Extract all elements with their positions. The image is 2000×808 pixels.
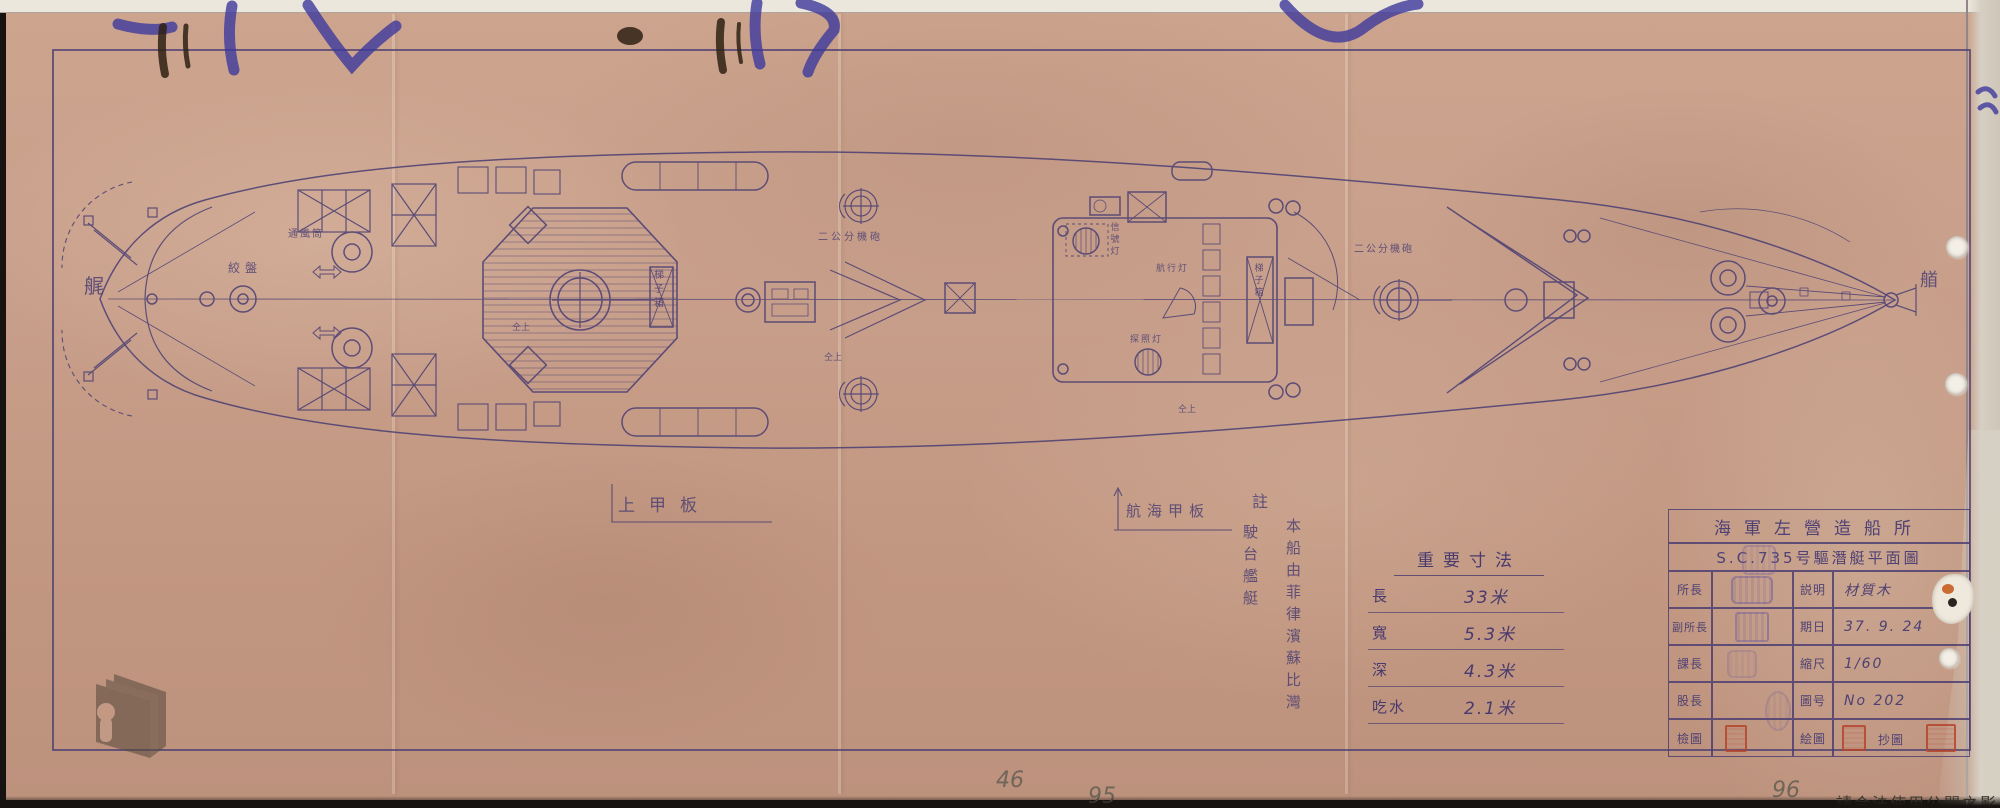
dim-value: 33米 <box>1464 583 1509 608</box>
red-seal-icon <box>1926 724 1956 752</box>
dimensions-title: 重要寸法 <box>1394 546 1544 576</box>
purple-stamp-icon <box>1735 612 1769 642</box>
approval-stamp-cell <box>1712 571 1793 608</box>
field-label: 絵圖 <box>1793 719 1833 757</box>
dim-label: 吃水 <box>1372 696 1406 717</box>
red-seal-icon <box>1842 725 1866 751</box>
ladder-box-label-2: 梯子箱 <box>1252 263 1261 299</box>
approval-stamp-cell <box>1712 682 1793 719</box>
capstan-label: 絞盤 <box>228 262 262 275</box>
role-label: 副所長 <box>1668 608 1712 645</box>
field-label: 縮尺 <box>1793 645 1833 682</box>
ditto-label: 仝上 <box>1178 406 1196 415</box>
field-value: No 202 <box>1833 682 1970 719</box>
tape-mark <box>1948 598 1957 607</box>
scan-bottom-edge <box>0 796 2000 808</box>
purple-stamp-icon <box>1742 545 1776 575</box>
purple-stamp-icon <box>1727 650 1757 678</box>
searchlight-label: 探照灯 <box>1130 336 1163 345</box>
approval-stamp-cell <box>1712 719 1793 757</box>
field-label: 圖号 <box>1793 682 1833 719</box>
pencil-number: 46 <box>996 768 1024 793</box>
field-label: 期日 <box>1793 608 1833 645</box>
role-label: 課長 <box>1668 645 1712 682</box>
principal-dimensions-table: 重要寸法 長 33米 寬 5.3米 深 4.3米 吃水 2.1米 <box>1368 546 1564 724</box>
upper-deck-label: 上甲板 <box>618 498 711 516</box>
approval-stamp-cell <box>1712 608 1793 645</box>
dimension-row-beam: 寬 5.3米 <box>1368 613 1564 650</box>
dim-label: 長 <box>1372 585 1389 606</box>
red-seal-icon <box>1725 725 1747 752</box>
dimension-row-length: 長 33米 <box>1368 576 1564 613</box>
blue-pen-marks <box>118 3 1996 112</box>
note-line-1: 本船由菲律濱蘇比灣 <box>1283 518 1304 758</box>
ditto-label: 仝上 <box>824 354 842 363</box>
field-label: 説明 <box>1793 571 1833 608</box>
role-label: 股長 <box>1668 682 1712 719</box>
role-label: 檢圖 <box>1668 719 1712 757</box>
dim-label: 深 <box>1372 659 1389 680</box>
bow-label: 艏 <box>1920 272 1938 291</box>
drawing-title: S.C.735号驅潛艇平面圖 <box>1668 543 1970 571</box>
punch-hole <box>1939 648 1959 668</box>
dimension-row-depth: 深 4.3米 <box>1368 650 1564 687</box>
shipyard-name: 海軍左營造船所 <box>1668 509 1970 543</box>
ladder-box-label: 梯子箱 <box>651 269 662 311</box>
title-block: 海軍左營造船所 S.C.735号驅潛艇平面圖 所長 説明 材質木 副所長 期日 … <box>1668 509 1970 757</box>
copy-label: 抄圖 <box>1878 731 1904 748</box>
dim-value: 5.3米 <box>1464 620 1516 645</box>
note-line-2: 駛台艦艇 <box>1240 524 1261 674</box>
tape-mark <box>1942 584 1954 594</box>
2cm-gun-label-fwd: 二公分機砲 <box>1354 245 1414 256</box>
ditto-label: 仝上 <box>512 324 530 333</box>
ink-stains <box>162 22 741 74</box>
ventilator-label: 通風筒 <box>288 230 324 241</box>
dim-label: 寬 <box>1372 622 1389 643</box>
navigation-light-label: 航行灯 <box>1156 265 1189 274</box>
role-label: 所長 <box>1668 571 1712 608</box>
dimension-row-draft: 吃水 2.1米 <box>1368 687 1564 724</box>
dim-value: 2.1米 <box>1464 694 1516 719</box>
punch-hole <box>1946 236 1968 258</box>
archive-logo-watermark <box>96 674 166 758</box>
punch-hole <box>1945 373 1967 395</box>
copy-check-cell: 抄圖 <box>1833 719 1970 757</box>
stern-label: 艉 <box>84 276 104 297</box>
note-heading: 註 <box>1252 494 1268 511</box>
scanned-blueprint-page: 艉 艏 絞盤 通風筒 梯子箱 二公分機砲 信號灯 航行灯 探照灯 梯子箱 二公分… <box>0 0 2000 808</box>
approval-stamp-cell <box>1712 645 1793 682</box>
2cm-gun-label-aft: 二公分機砲 <box>818 233 883 244</box>
signal-light-label: 信號灯 <box>1108 222 1117 258</box>
purple-stamp-icon <box>1731 576 1773 604</box>
dim-value: 4.3米 <box>1464 657 1516 682</box>
navigation-deck-label: 航海甲板 <box>1126 504 1210 520</box>
